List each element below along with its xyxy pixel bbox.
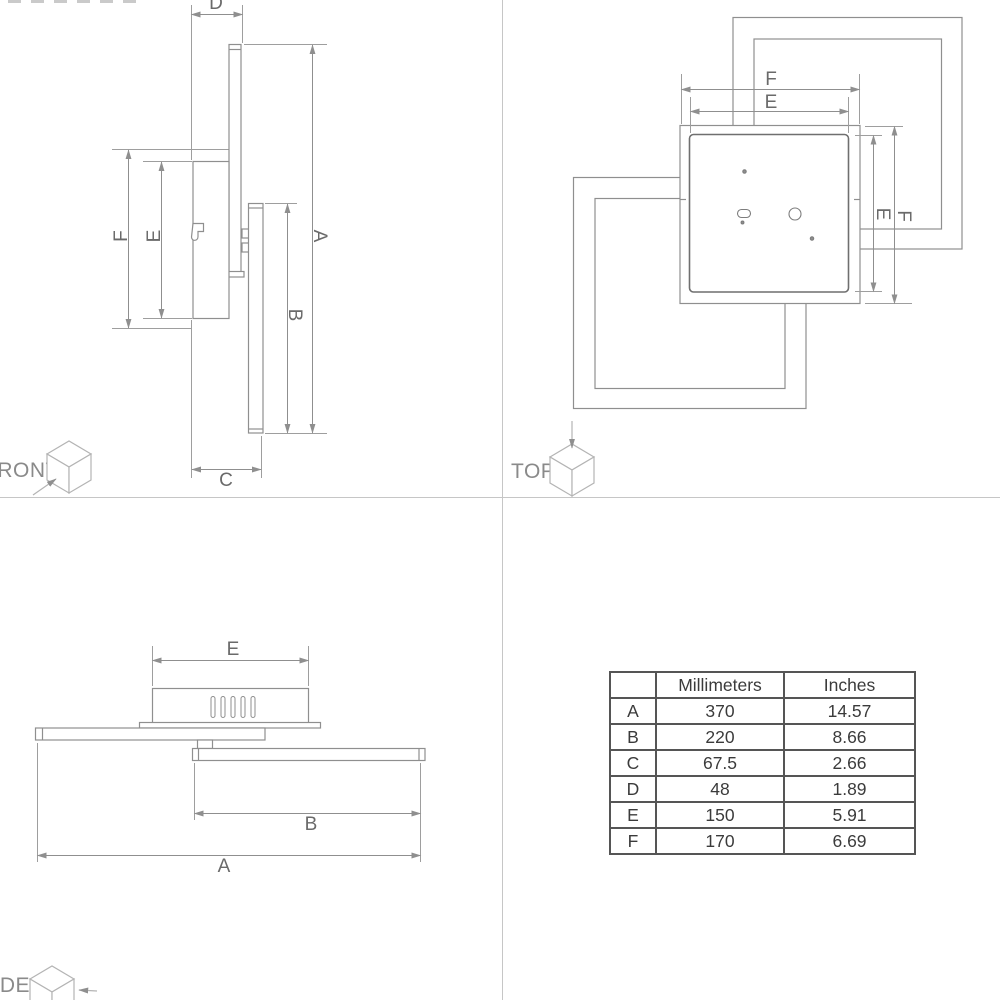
front-dim-b-label: B	[284, 309, 305, 322]
dim-letter: E	[610, 802, 656, 828]
table-row: B 220 8.66	[610, 724, 915, 750]
side-connector	[198, 740, 213, 749]
dim-letter: C	[610, 750, 656, 776]
side-mounting-flange	[140, 723, 321, 729]
dimensions-table: Millimeters Inches A 370 14.57 B 220 8.6…	[609, 671, 916, 855]
side-frame1-bar	[36, 728, 266, 740]
header-inches: Inches	[784, 672, 915, 698]
header-dim	[610, 672, 656, 698]
top-canopy-box	[680, 126, 860, 304]
front-dim-e-label: E	[144, 230, 165, 243]
table-row: C 67.5 2.66	[610, 750, 915, 776]
table-row: F 170 6.69	[610, 828, 915, 854]
cube-side-face-arrow-icon	[30, 966, 97, 1000]
side-dim-b-label: B	[305, 814, 318, 835]
top-screw-dot-1	[743, 170, 746, 173]
dim-in: 6.69	[784, 828, 915, 854]
side-view-drawing	[36, 646, 426, 862]
technical-drawing-page: D F E A B C FRONT	[0, 0, 1000, 1000]
front-frame2-plate	[249, 204, 264, 434]
top-view-label: TOP	[511, 460, 555, 483]
side-view-label: SIDE	[0, 974, 30, 997]
dim-letter: A	[610, 698, 656, 724]
top-screw-dot-3	[810, 237, 813, 240]
dim-in: 1.89	[784, 776, 915, 802]
front-frame1-plate	[229, 45, 241, 273]
dim-in: 8.66	[784, 724, 915, 750]
front-dim-a-label: A	[309, 230, 330, 243]
table-row: E 150 5.91	[610, 802, 915, 828]
dim-in: 2.66	[784, 750, 915, 776]
dim-mm: 370	[656, 698, 784, 724]
table-header-row: Millimeters Inches	[610, 672, 915, 698]
front-dim-f-label: F	[111, 230, 132, 242]
side-dim-e-label: E	[227, 639, 240, 660]
dim-letter: F	[610, 828, 656, 854]
dim-in: 14.57	[784, 698, 915, 724]
top-dim-f-width-label: F	[765, 69, 777, 90]
dim-mm: 150	[656, 802, 784, 828]
dim-mm: 220	[656, 724, 784, 750]
dim-mm: 170	[656, 828, 784, 854]
dim-in: 5.91	[784, 802, 915, 828]
table-row: A 370 14.57	[610, 698, 915, 724]
dim-letter: D	[610, 776, 656, 802]
dim-letter: B	[610, 724, 656, 750]
top-screw-dot-2	[741, 221, 744, 224]
top-dim-e-width-label: E	[765, 92, 778, 113]
side-dim-a-label: A	[218, 856, 231, 877]
cube-top-face-arrow-icon	[550, 421, 594, 496]
table-row: D 48 1.89	[610, 776, 915, 802]
front-dim-c-label: C	[219, 470, 233, 491]
top-dim-f-height-label: F	[893, 210, 914, 222]
dim-mm: 67.5	[656, 750, 784, 776]
header-millimeters: Millimeters	[656, 672, 784, 698]
front-canopy-box	[193, 162, 229, 319]
side-frame2-bar	[193, 749, 426, 761]
top-dim-e-height-label: E	[872, 208, 893, 221]
front-dim-d-label: D	[209, 0, 223, 14]
dim-mm: 48	[656, 776, 784, 802]
